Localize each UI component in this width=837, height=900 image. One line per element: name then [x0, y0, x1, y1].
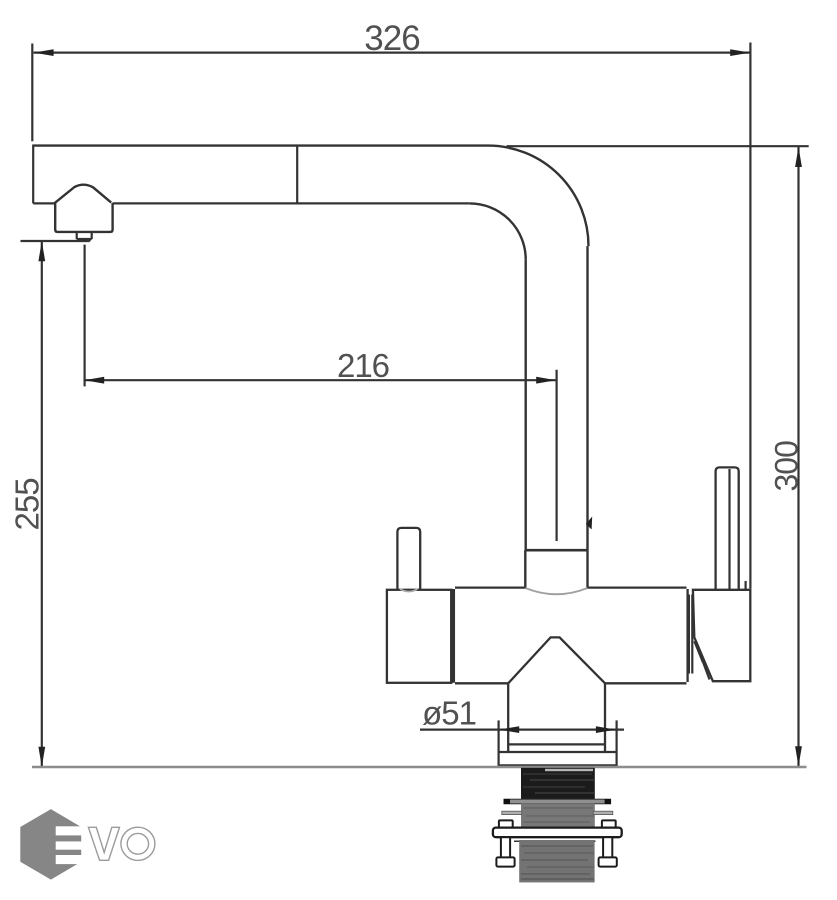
svg-text:255: 255 — [9, 478, 46, 530]
svg-text:326: 326 — [364, 19, 419, 58]
svg-text:ø51: ø51 — [422, 695, 476, 732]
svg-text:300: 300 — [769, 441, 805, 492]
svg-text:216: 216 — [337, 347, 389, 384]
